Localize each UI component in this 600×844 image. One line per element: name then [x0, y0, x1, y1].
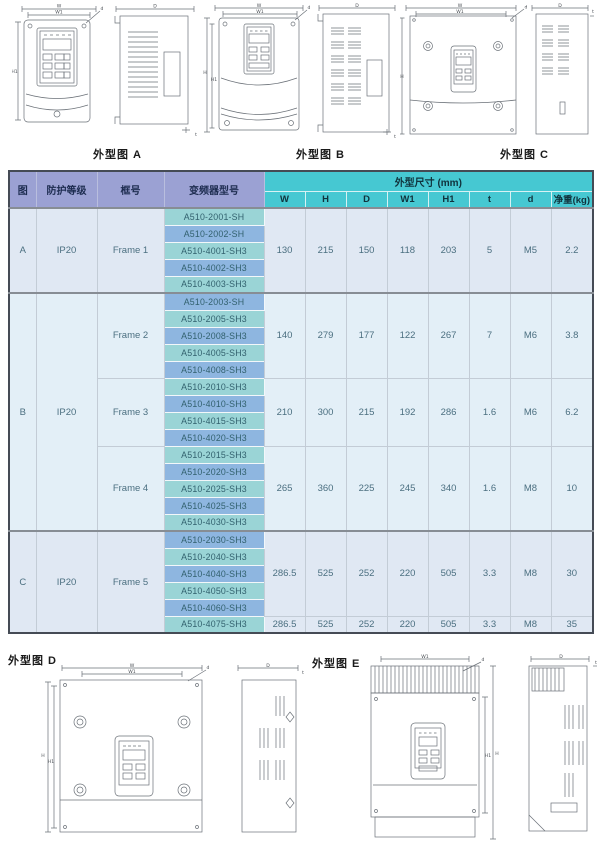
dimension-cell: 300 [305, 378, 346, 446]
dimension-cell: 203 [428, 208, 469, 293]
figure-label-a: 外型图 A [93, 146, 142, 162]
header-frame: 框号 [97, 171, 164, 208]
dimension-cell: 525 [305, 531, 346, 616]
header-dim-h1: H1 [428, 191, 469, 208]
figure-cell: A [9, 208, 36, 293]
dimension-cell: 505 [428, 531, 469, 616]
outline-drawing-c: W W1 H d D t [400, 2, 598, 144]
dimension-cell: 30 [551, 531, 593, 616]
header-model: 变频器型号 [164, 171, 264, 208]
dim-label-w: W [130, 663, 135, 669]
frame-cell: Frame 3 [97, 378, 164, 446]
frame-cell: Frame 2 [97, 293, 164, 378]
header-dim-净重(kg): 净重(kg) [551, 191, 593, 208]
outline-drawing-a: W W1 H1 d D t [12, 2, 204, 144]
dimension-cell: 7 [469, 293, 510, 378]
dimension-cell: 10 [551, 446, 593, 531]
header-dims-group: 外型尺寸 (mm) [264, 171, 593, 191]
model-cell: A510-4040-SH3 [164, 565, 264, 582]
dim-label-w: W [57, 4, 62, 10]
dimension-cell: 286.5 [264, 531, 305, 616]
dimensions-table: 图防护等级框号变频器型号外型尺寸 (mm)WHDW1H1td净重(kg) AIP… [8, 170, 594, 634]
dimension-cell: 35 [551, 616, 593, 633]
dimension-cell: 150 [346, 208, 387, 293]
dimension-cell: 215 [305, 208, 346, 293]
figure-label-c: 外型图 C [500, 146, 549, 162]
table-row: AIP20Frame 1A510-2001-SH1302151501182035… [9, 208, 593, 225]
dim-label-depth: D [559, 654, 563, 660]
header-fig: 图 [9, 171, 36, 208]
dimension-cell: M6 [510, 293, 551, 378]
dimension-cell: 267 [428, 293, 469, 378]
dim-label-t: t [592, 9, 594, 15]
figure-cell: C [9, 531, 36, 633]
dimension-cell: 2.2 [551, 208, 593, 293]
model-cell: A510-4060-SH3 [164, 599, 264, 616]
model-cell: A510-2005-SH3 [164, 310, 264, 327]
dimension-cell: 225 [346, 446, 387, 531]
dim-label-d-screw: d [308, 5, 311, 11]
dim-label-h1: H1 [211, 77, 217, 83]
model-cell: A510-4025-SH3 [164, 497, 264, 514]
header-dim-t: t [469, 191, 510, 208]
dim-label-t: t [195, 132, 197, 138]
dimension-cell: M6 [510, 378, 551, 446]
model-cell: A510-4050-SH3 [164, 582, 264, 599]
header-dim-w1: W1 [387, 191, 428, 208]
table-body: AIP20Frame 1A510-2001-SH1302151501182035… [9, 208, 593, 633]
model-cell: A510-4008-SH3 [164, 361, 264, 378]
dimension-cell: 118 [387, 208, 428, 293]
dimension-cell: 1.6 [469, 378, 510, 446]
dimension-cell: 286 [428, 378, 469, 446]
outline-drawing-e: W1 d H1 H D t [345, 653, 600, 843]
dim-label-h1: H1 [12, 69, 18, 75]
table-row: Frame 3A510-2010-SH32103002151922861.6M6… [9, 378, 593, 395]
model-cell: A510-2003-SH [164, 293, 264, 310]
dim-label-h: H [203, 70, 206, 76]
table-row: BIP20Frame 2A510-2003-SH1402791771222677… [9, 293, 593, 310]
frame-cell: Frame 4 [97, 446, 164, 531]
model-cell: A510-4001-SH3 [164, 242, 264, 259]
dimensions-table-wrap: 图防护等级框号变频器型号外型尺寸 (mm)WHDW1H1td净重(kg) AIP… [8, 170, 592, 634]
dim-label-depth: D [355, 3, 359, 9]
dimension-cell: 279 [305, 293, 346, 378]
model-cell: A510-4075-SH3 [164, 616, 264, 633]
dim-label-d-screw: d [207, 665, 210, 671]
dimension-cell: 252 [346, 531, 387, 616]
dimension-cell: M8 [510, 616, 551, 633]
dimension-cell: 1.6 [469, 446, 510, 531]
header-dim-h: H [305, 191, 346, 208]
dimension-cell: 505 [428, 616, 469, 633]
model-cell: A510-2010-SH3 [164, 378, 264, 395]
model-cell: A510-2002-SH [164, 225, 264, 242]
header-protection: 防护等级 [36, 171, 97, 208]
dimension-cell: 177 [346, 293, 387, 378]
dimension-cell: 140 [264, 293, 305, 378]
dimension-cell: 3.3 [469, 531, 510, 616]
model-cell: A510-4015-SH3 [164, 412, 264, 429]
header-dim-w: W [264, 191, 305, 208]
frame-cell: Frame 5 [97, 531, 164, 633]
dim-label-w1: W1 [128, 669, 136, 675]
model-cell: A510-2040-SH3 [164, 548, 264, 565]
model-cell: A510-2030-SH3 [164, 531, 264, 548]
dim-label-t: t [394, 134, 396, 140]
dimension-cell: 220 [387, 616, 428, 633]
dimension-cell: 192 [387, 378, 428, 446]
table-row: Frame 4A510-2015-SH32653602252453401.6M8… [9, 446, 593, 463]
dimension-cell: 360 [305, 446, 346, 531]
model-cell: A510-2008-SH3 [164, 327, 264, 344]
dimension-cell: 6.2 [551, 378, 593, 446]
dim-label-h1: H1 [485, 753, 491, 759]
model-cell: A510-2025-SH3 [164, 480, 264, 497]
protection-cell: IP20 [36, 293, 97, 531]
model-cell: A510-4030-SH3 [164, 514, 264, 531]
model-cell: A510-4010-SH3 [164, 395, 264, 412]
dim-label-t: t [302, 670, 304, 676]
figure-label-b: 外型图 B [296, 146, 345, 162]
protection-cell: IP20 [36, 208, 97, 293]
dimension-cell: 5 [469, 208, 510, 293]
dimension-cell: 252 [346, 616, 387, 633]
dim-label-h1: H1 [48, 759, 54, 765]
dim-label-depth: D [153, 4, 157, 10]
dim-label-h: H [495, 751, 498, 757]
dim-label-d-screw: d [482, 657, 485, 663]
outline-drawing-d: W W1 H H1 d D t [40, 660, 310, 842]
model-cell: A510-4002-SH3 [164, 259, 264, 276]
dim-label-w: W [257, 3, 262, 9]
model-cell: A510-2020-SH3 [164, 463, 264, 480]
frame-cell: Frame 1 [97, 208, 164, 293]
header-dim-d: D [346, 191, 387, 208]
dimension-cell: 220 [387, 531, 428, 616]
model-cell: A510-4020-SH3 [164, 429, 264, 446]
dimension-cell: 210 [264, 378, 305, 446]
dimension-cell: 3.8 [551, 293, 593, 378]
dim-label-d-screw: d [525, 5, 528, 11]
dim-label-w1: W1 [421, 654, 429, 660]
dim-label-w: W [458, 3, 463, 9]
model-cell: A510-2015-SH3 [164, 446, 264, 463]
dimension-cell: M5 [510, 208, 551, 293]
dim-label-h: H [400, 74, 403, 80]
header-dim-d: d [510, 191, 551, 208]
dimension-cell: 340 [428, 446, 469, 531]
dimension-cell: M8 [510, 446, 551, 531]
dimension-cell: 3.3 [469, 616, 510, 633]
dimension-cell: 286.5 [264, 616, 305, 633]
dim-label-w1: W1 [256, 9, 264, 15]
model-cell: A510-4005-SH3 [164, 344, 264, 361]
dimension-cell: 525 [305, 616, 346, 633]
dimension-cell: 265 [264, 446, 305, 531]
dim-label-w1: W1 [55, 10, 63, 16]
dim-label-depth: D [558, 3, 562, 9]
manual-page: W W1 H1 d D t W W1 [0, 0, 600, 844]
model-cell: A510-2001-SH [164, 208, 264, 225]
model-cell: A510-4003-SH3 [164, 276, 264, 293]
dimension-cell: 122 [387, 293, 428, 378]
dim-label-d-screw: d [101, 6, 104, 12]
protection-cell: IP20 [36, 531, 97, 633]
dim-label-depth: D [266, 663, 270, 669]
dim-label-t: t [595, 660, 597, 666]
dim-label-h: H [41, 753, 44, 759]
dimension-cell: M8 [510, 531, 551, 616]
table-header: 图防护等级框号变频器型号外型尺寸 (mm)WHDW1H1td净重(kg) [9, 171, 593, 208]
outline-drawing-b: W W1 H H1 d D t [203, 2, 401, 144]
dimension-cell: 245 [387, 446, 428, 531]
dimension-cell: 130 [264, 208, 305, 293]
dimension-cell: 215 [346, 378, 387, 446]
dim-label-w1: W1 [456, 9, 464, 15]
table-row: CIP20Frame 5A510-2030-SH3286.55252522205… [9, 531, 593, 548]
figure-cell: B [9, 293, 36, 531]
